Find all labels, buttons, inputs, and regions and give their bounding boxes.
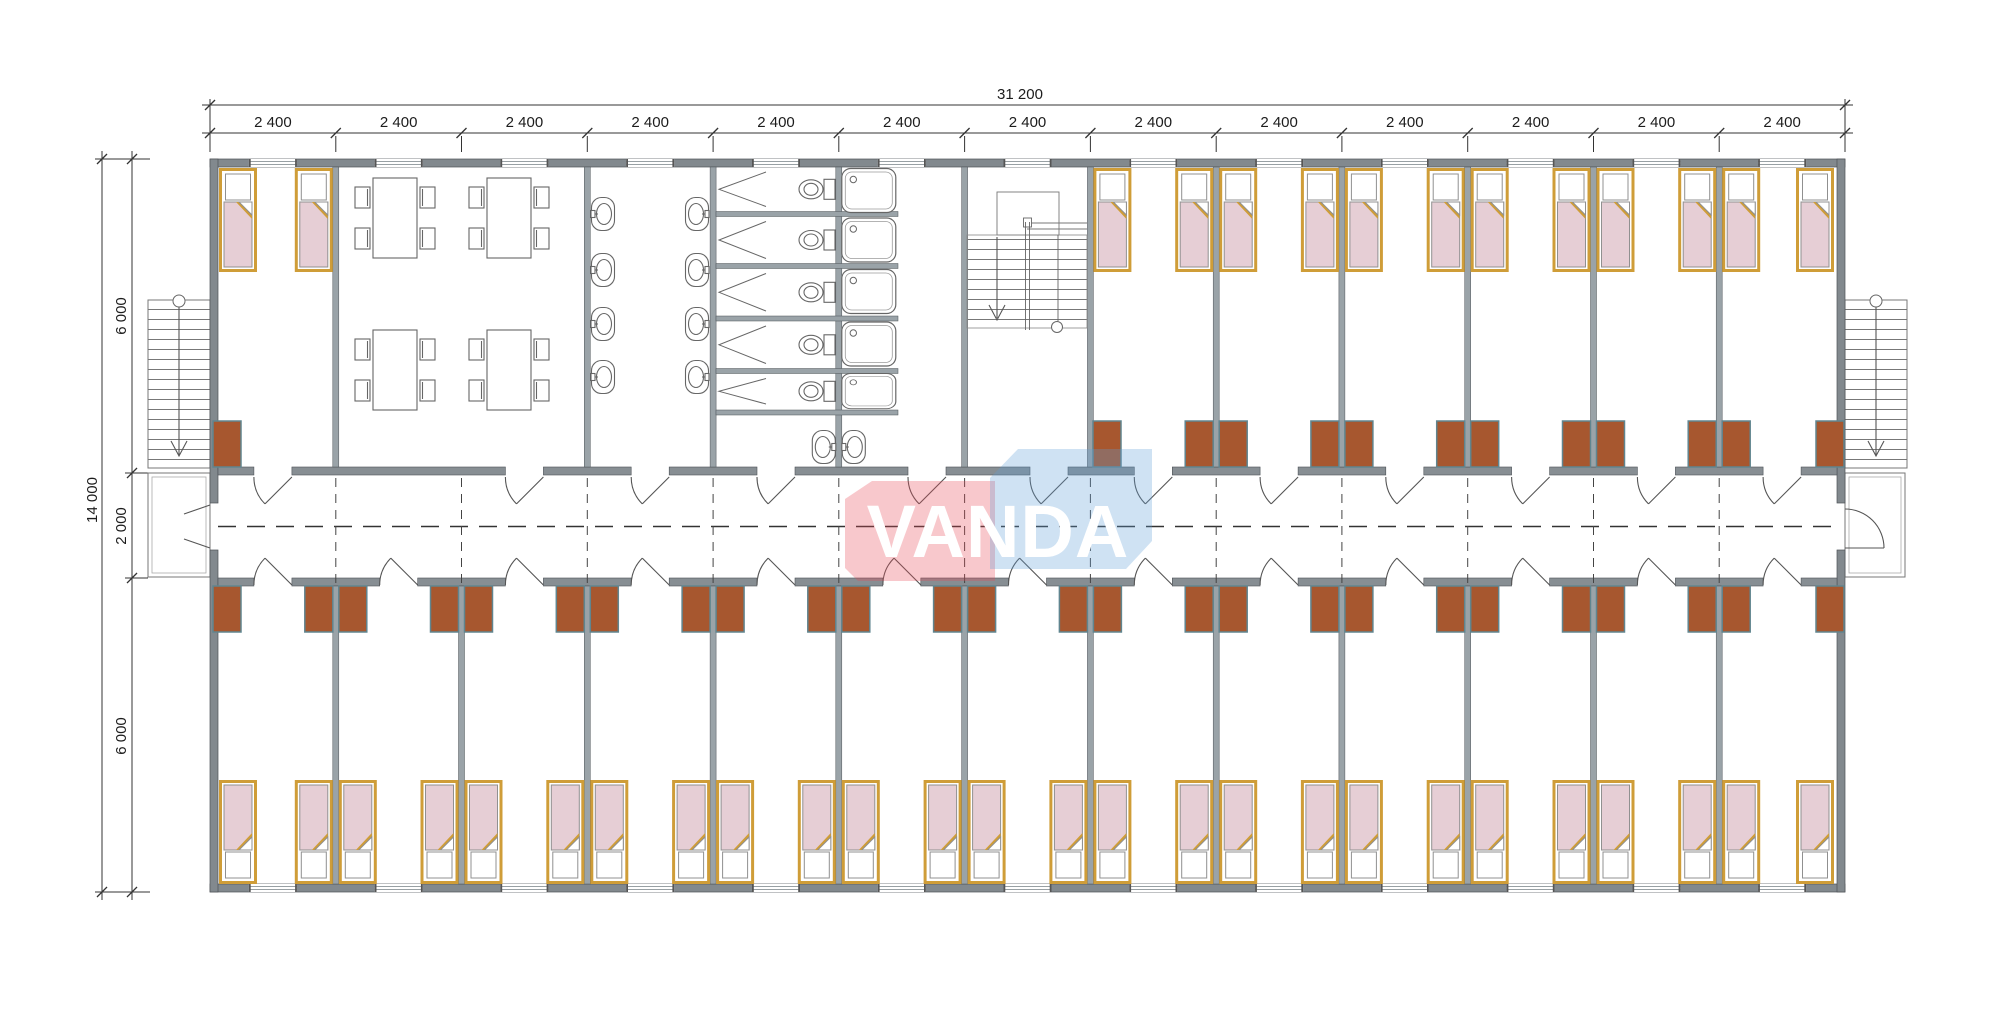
wardrobe-cabinet — [431, 586, 459, 632]
bed — [1302, 170, 1337, 271]
dim-bay: 2 400 — [1135, 114, 1173, 131]
window — [626, 159, 674, 167]
window — [1129, 159, 1177, 167]
dim-bay: 2 400 — [631, 114, 669, 131]
bed — [1428, 782, 1463, 883]
wardrobe-cabinet — [1816, 421, 1844, 467]
wardrobe-cabinet — [1093, 586, 1121, 632]
dim-bay: 2 400 — [1638, 114, 1676, 131]
wash-basin — [686, 198, 710, 231]
internal-staircase — [967, 192, 1087, 333]
door-swing — [1763, 477, 1801, 504]
bed — [1724, 170, 1759, 271]
shower-tray — [842, 374, 896, 409]
bed — [1221, 782, 1256, 883]
door-swing — [380, 558, 418, 585]
window — [500, 159, 548, 167]
floor-plan-page: 31 200 2 400 2 400 2 400 2 400 2 400 2 4… — [0, 0, 2000, 1032]
wardrobe-cabinet — [1563, 421, 1591, 467]
wardrobe-cabinet — [1722, 421, 1750, 467]
dim-bay: 2 400 — [1386, 114, 1424, 131]
bed — [466, 782, 501, 883]
door-swing — [757, 558, 795, 585]
window — [249, 159, 297, 167]
bed — [296, 170, 331, 271]
dim-bay: 2 400 — [883, 114, 921, 131]
wash-basin — [591, 308, 615, 341]
bed — [1798, 170, 1833, 271]
bed — [799, 782, 834, 883]
bed — [1095, 782, 1130, 883]
bed — [674, 782, 709, 883]
floor-plan: 31 200 2 400 2 400 2 400 2 400 2 400 2 4… — [0, 0, 2000, 1032]
wardrobe-cabinet — [1345, 586, 1373, 632]
bed — [548, 782, 583, 883]
door-swing — [1637, 477, 1675, 504]
window — [1632, 159, 1680, 167]
bed — [1598, 170, 1633, 271]
bed — [1554, 170, 1589, 271]
bed — [340, 782, 375, 883]
wardrobe-cabinet — [1688, 421, 1716, 467]
door-swing — [1134, 558, 1172, 585]
bed — [1472, 170, 1507, 271]
dim-bay: 2 400 — [1512, 114, 1550, 131]
dining-table-set — [469, 178, 549, 258]
dining-table-set — [469, 330, 549, 410]
wash-basin — [812, 431, 836, 464]
bed — [1302, 782, 1337, 883]
bed — [1428, 170, 1463, 271]
window — [375, 159, 423, 167]
wardrobe-cabinet — [1816, 586, 1844, 632]
dim-bay: 2 400 — [1763, 114, 1801, 131]
window — [1632, 884, 1680, 892]
bed — [221, 170, 256, 271]
toilet — [799, 282, 835, 302]
door-swing — [254, 477, 292, 504]
bed — [221, 782, 256, 883]
dim-bay: 2 400 — [506, 114, 544, 131]
left-dimension: 14 000 6 000 2 000 6 000 — [84, 151, 150, 900]
bed — [718, 782, 753, 883]
toilet — [799, 335, 835, 355]
door-swing — [631, 558, 669, 585]
bed — [1346, 782, 1381, 883]
wardrobe-cabinet — [1563, 586, 1591, 632]
wardrobe-cabinet — [1219, 586, 1247, 632]
bed — [1598, 782, 1633, 883]
window — [878, 159, 926, 167]
wardrobe-cabinet — [1597, 586, 1625, 632]
wardrobe-cabinet — [808, 586, 836, 632]
window — [249, 884, 297, 892]
door-swing — [1512, 558, 1550, 585]
wash-basin — [591, 254, 615, 287]
wardrobe-cabinet — [1437, 586, 1465, 632]
window — [1758, 884, 1806, 892]
bed — [296, 782, 331, 883]
wash-basin — [842, 431, 866, 464]
external-staircase-right — [1845, 295, 1907, 577]
wardrobe-cabinet — [1597, 421, 1625, 467]
wardrobe-cabinet — [1722, 586, 1750, 632]
door-swing — [505, 558, 543, 585]
window — [752, 884, 800, 892]
door-swing — [1763, 558, 1801, 585]
wardrobe-cabinet — [1688, 586, 1716, 632]
bed — [1177, 170, 1212, 271]
wardrobe-cabinet — [1345, 421, 1373, 467]
window — [500, 884, 548, 892]
top-dimension: 31 200 2 400 2 400 2 400 2 400 2 400 2 4… — [202, 86, 1853, 152]
door-swing — [1386, 477, 1424, 504]
wash-basin — [591, 361, 615, 394]
door-swing — [631, 477, 669, 504]
door-swing — [254, 558, 292, 585]
window — [375, 884, 423, 892]
bed — [1177, 782, 1212, 883]
bed — [1221, 170, 1256, 271]
wardrobe-cabinet — [1437, 421, 1465, 467]
window — [1255, 884, 1303, 892]
shower-tray — [842, 270, 896, 314]
wardrobe-cabinet — [1219, 421, 1247, 467]
dim-bay: 2 400 — [380, 114, 418, 131]
wardrobe-cabinet — [1471, 586, 1499, 632]
entry-landing-right — [1845, 473, 1905, 577]
wardrobe-cabinet — [1311, 586, 1339, 632]
bed — [422, 782, 457, 883]
bed — [1346, 170, 1381, 271]
window — [1507, 159, 1555, 167]
window — [1381, 884, 1429, 892]
wardrobe-cabinet — [556, 586, 584, 632]
window — [1507, 884, 1555, 892]
wardrobe-cabinet — [465, 586, 493, 632]
wardrobe-cabinet — [968, 586, 996, 632]
dim-depth-seg: 2 000 — [113, 507, 130, 545]
bed — [1680, 782, 1715, 883]
wardrobe-cabinet — [590, 586, 618, 632]
wash-basin — [686, 361, 710, 394]
door-swing — [1386, 558, 1424, 585]
shower-tray — [842, 322, 896, 366]
wash-basin — [686, 308, 710, 341]
wardrobe-cabinet — [1471, 421, 1499, 467]
dim-bay: 2 400 — [254, 114, 292, 131]
dim-bay: 2 400 — [757, 114, 795, 131]
shower-tray — [842, 218, 896, 262]
bed — [1680, 170, 1715, 271]
door-swing — [757, 477, 795, 504]
toilet — [799, 381, 835, 401]
dining-table-set — [355, 178, 435, 258]
bed — [1554, 782, 1589, 883]
bed — [1724, 782, 1759, 883]
bed — [1095, 170, 1130, 271]
door-swing — [1260, 477, 1298, 504]
wardrobe-cabinet — [682, 586, 710, 632]
bed — [592, 782, 627, 883]
window — [1758, 159, 1806, 167]
door-swing — [1512, 477, 1550, 504]
dim-depth-seg: 6 000 — [113, 717, 130, 755]
dim-depth-seg: 6 000 — [113, 297, 130, 335]
watermark-logo-text: VANDA — [867, 490, 1130, 573]
bed — [1472, 782, 1507, 883]
bed — [925, 782, 960, 883]
external-staircase-left — [148, 295, 210, 577]
washroom — [591, 198, 709, 394]
wardrobe-cabinet — [213, 586, 241, 632]
window — [1004, 884, 1052, 892]
wardrobe-cabinet — [305, 586, 333, 632]
door-swing — [1260, 558, 1298, 585]
window — [1255, 159, 1303, 167]
wash-basin — [591, 198, 615, 231]
window — [878, 884, 926, 892]
wardrobe-cabinet — [934, 586, 962, 632]
wardrobe-cabinet — [1311, 421, 1339, 467]
bed — [843, 782, 878, 883]
window — [626, 884, 674, 892]
dim-total-width: 31 200 — [997, 86, 1043, 103]
window — [1004, 159, 1052, 167]
window — [1381, 159, 1429, 167]
dining-room — [355, 178, 549, 410]
window — [1129, 884, 1177, 892]
wardrobe-cabinet — [842, 586, 870, 632]
wardrobe-cabinet — [716, 586, 744, 632]
door-swing — [505, 477, 543, 504]
shower-tray — [842, 169, 896, 213]
entry-landing-left — [148, 473, 210, 577]
toilet — [799, 179, 835, 199]
toilet — [799, 230, 835, 250]
bed — [969, 782, 1004, 883]
wardrobe-cabinet — [339, 586, 367, 632]
dining-table-set — [355, 330, 435, 410]
door-swing — [1637, 558, 1675, 585]
dim-bay: 2 400 — [1260, 114, 1298, 131]
bed — [1051, 782, 1086, 883]
dim-total-depth: 14 000 — [84, 477, 101, 523]
wardrobe-cabinet — [213, 421, 241, 467]
wash-basin — [686, 254, 710, 287]
window — [752, 159, 800, 167]
bed — [1798, 782, 1833, 883]
dim-bay: 2 400 — [1009, 114, 1047, 131]
wardrobe-cabinet — [1185, 586, 1213, 632]
wardrobe-cabinet — [1185, 421, 1213, 467]
wardrobe-cabinet — [1059, 586, 1087, 632]
